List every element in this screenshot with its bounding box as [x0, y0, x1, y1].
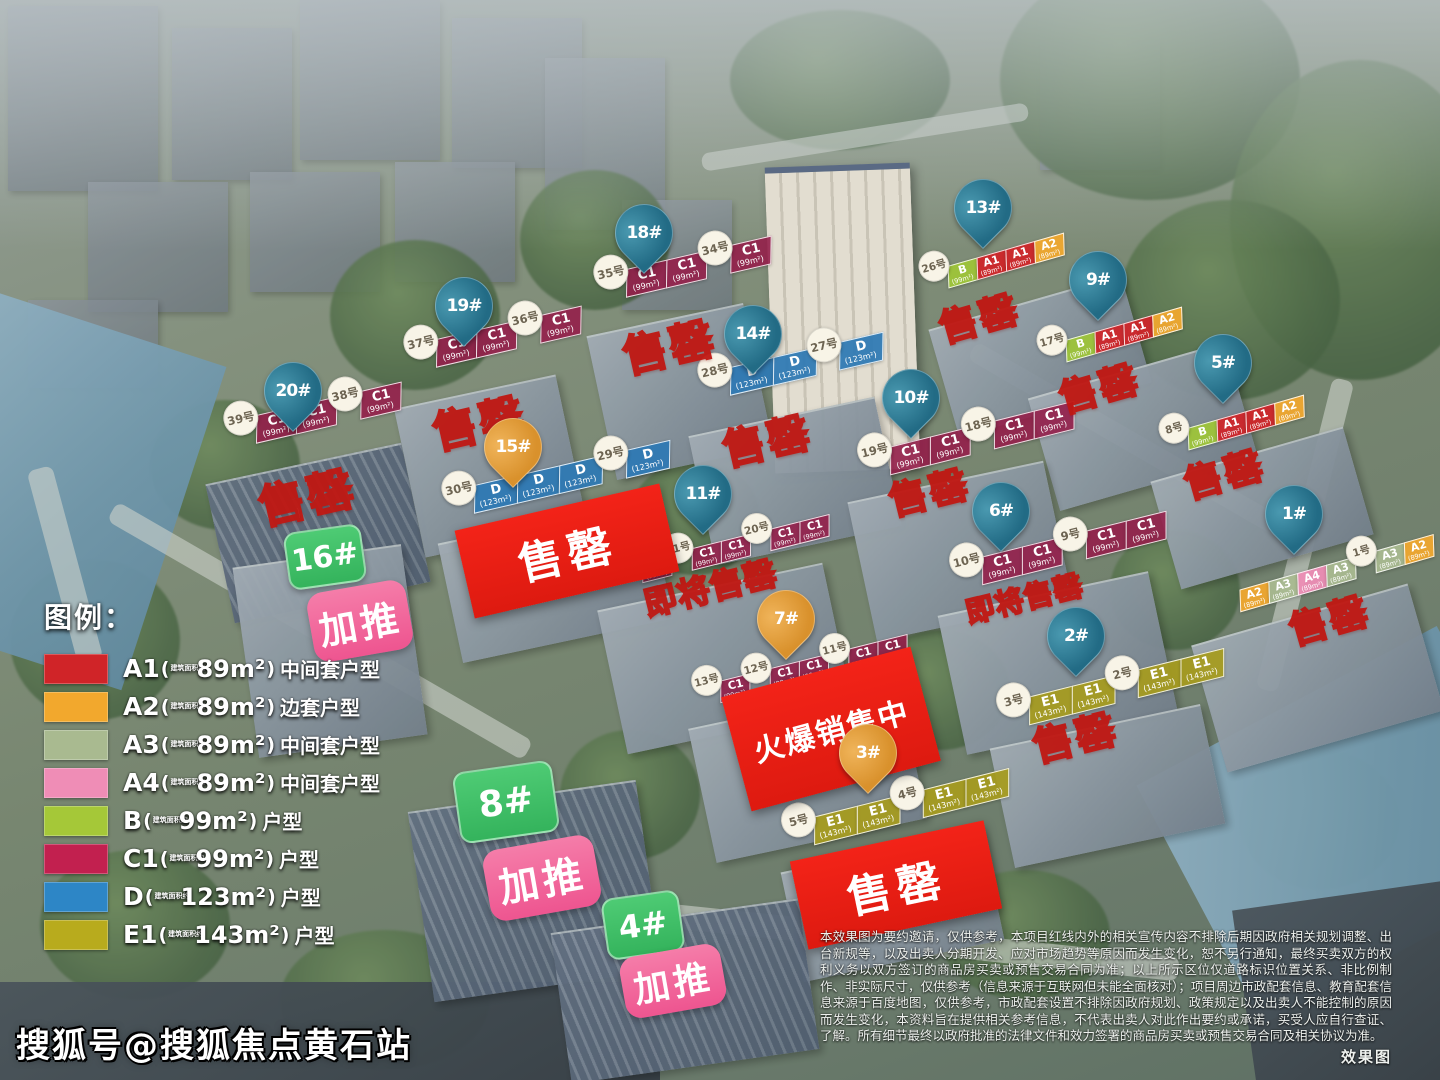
unit-area: (99m²): [262, 425, 291, 439]
unit-area: (143m²): [970, 787, 1004, 803]
unit-area: (99m²): [367, 401, 396, 415]
legend-title: 图例：: [44, 596, 424, 636]
unit-area: (99m²): [737, 255, 766, 269]
unit-area: (143m²): [1143, 678, 1177, 694]
pin-label: 9#: [1070, 252, 1126, 308]
legend-item-a1: A1(建筑面积约89m²)中间套户型: [44, 654, 424, 683]
pin-label: 13#: [955, 180, 1011, 236]
unit-type-tile: C1(99m²): [770, 521, 800, 552]
unit-area: (123m²): [631, 459, 665, 474]
unit-type-tile: A1(89m²): [1005, 241, 1036, 273]
site-plan-rendering: 39号C1(99m²)C1(99m²)38号C1(99m²) 37号C1(99m…: [0, 0, 1440, 1080]
unit-type-tile: A1(89m²): [1123, 315, 1154, 347]
unit-area: (99m²): [952, 273, 975, 286]
pin-label: 18#: [616, 205, 672, 261]
unit-type-tile: A2(89m²): [1274, 395, 1305, 427]
legend-qualifier: 建筑面积约: [170, 665, 196, 673]
pin-label: 19#: [436, 278, 492, 334]
unit-type-tile: A1(89m²): [1245, 403, 1276, 435]
unit-area: (99m²): [672, 270, 701, 284]
unit-type-tile: D(123m²): [839, 332, 883, 371]
unit-type-tile: A2(89m²): [1240, 581, 1271, 613]
legend-swatch-a4: [44, 768, 108, 798]
unit-area: (143m²): [861, 815, 895, 831]
legend-swatch-d: [44, 882, 108, 912]
unit-type-tile: E1(143m²): [1180, 649, 1223, 689]
unit-area: (99m²): [547, 325, 576, 339]
disclaimer-block: 本效果图为要约邀请，仅供参考，本项目红线内外的相关宣传内容不排除后期因政府相关规…: [820, 929, 1392, 1067]
unit-type-tile: B(99m²): [948, 258, 979, 290]
pin-label: 1#: [1266, 486, 1322, 542]
legend-swatch-c1: [44, 844, 108, 874]
pin-label: 11#: [675, 466, 731, 522]
legend-swatch-b: [44, 806, 108, 836]
unit-type-tile: E1(143m²): [923, 779, 966, 819]
unit-area: (99m²): [442, 349, 471, 363]
pin-label: 15#: [485, 419, 541, 475]
legend-item-c1: C1(建筑面积约99m²)户型: [44, 844, 424, 873]
unit-type-tile: C1(99m²): [730, 236, 771, 274]
unit-type-tile: C1(99m²): [540, 306, 581, 344]
unit-area: (99m²): [774, 537, 797, 549]
legend-item-a4: A4(建筑面积约89m²)中间套户型: [44, 768, 424, 797]
legend: 图例： A1(建筑面积约89m²)中间套户型 A2(建筑面积约89m²)边套户型…: [44, 596, 424, 958]
unit-area: (99m²): [482, 340, 511, 354]
watermark: 搜狐号@搜狐焦点黄石站: [16, 1018, 412, 1067]
unit-type-tile: C1(99m²): [360, 382, 401, 420]
unit-type-tile: C1(99m²): [994, 411, 1035, 450]
pin-label: 6#: [973, 483, 1029, 539]
haze-overlay: [0, 0, 1440, 250]
unit-area: (123m²): [844, 351, 878, 366]
unit-area: (99m²): [632, 279, 661, 293]
unit-type-tile: C1(99m²): [1086, 521, 1127, 560]
unit-type-tile: D(123m²): [626, 440, 670, 479]
unit-area: (99m²): [1000, 430, 1029, 445]
unit-area: (99m²): [803, 529, 826, 541]
pin-label: 7#: [758, 591, 814, 647]
unit-area: (143m²): [1185, 667, 1219, 683]
unit-area: (99m²): [1132, 530, 1161, 545]
legend-desc: 中间套户型: [280, 654, 380, 683]
legend-item-a3: A3(建筑面积约89m²)中间套户型: [44, 730, 424, 759]
unit-type-tile: E1(143m²): [965, 769, 1008, 809]
unit-area: (123m²): [778, 366, 812, 381]
unit-area: (123m²): [735, 376, 769, 391]
unit-type-tile: A1(89m²): [977, 249, 1008, 281]
unit-area: (123m²): [564, 475, 598, 490]
pin-label: 10#: [883, 370, 939, 426]
unit-type-tile: A2(89m²): [1404, 534, 1435, 566]
legend-area: 89m²: [196, 655, 265, 683]
pin-label: 5#: [1195, 335, 1251, 391]
tag-building-16: 16#: [282, 523, 367, 591]
unit-area: (143m²): [819, 825, 853, 841]
unit-area: (123m²): [479, 494, 513, 509]
legend-item-a2: A2(建筑面积约89m²)边套户型: [44, 692, 424, 721]
pin-label: 2#: [1048, 608, 1104, 664]
legend-swatch-a1: [44, 654, 108, 684]
unit-area: (99m²): [1092, 540, 1121, 555]
pin-label: 20#: [265, 363, 321, 419]
legend-swatch-a3: [44, 730, 108, 760]
disclaimer-text: 本效果图为要约邀请，仅供参考，本项目红线内外的相关宣传内容不排除后期因政府相关规…: [820, 929, 1392, 1045]
legend-item-e1: E1(建筑面积约143m²)户型: [44, 920, 424, 949]
unit-type-tile: C1(99m²): [800, 514, 830, 545]
legend-swatch-a2: [44, 692, 108, 722]
pin-label: 3#: [840, 725, 896, 781]
unit-type-tile: C1(99m²): [1126, 511, 1167, 550]
unit-type-tile: E1(143m²): [814, 806, 857, 846]
render-note: 效果图: [820, 1048, 1392, 1068]
unit-area: (99m²): [1040, 420, 1069, 435]
unit-area: (143m²): [928, 798, 962, 814]
unit-type-tile: A3(89m²): [1375, 543, 1406, 575]
unit-area: (99m²): [1070, 347, 1093, 360]
tag-building-8: 8#: [451, 759, 560, 844]
legend-swatch-e1: [44, 920, 108, 950]
unit-area: (123m²): [522, 484, 556, 499]
legend-code: A1: [123, 654, 160, 683]
pin-label: 14#: [725, 306, 781, 362]
unit-type-tile: A2(89m²): [1152, 307, 1183, 339]
unit-type-tile: E1(143m²): [1138, 659, 1181, 699]
legend-item-b: B(建筑面积约99m²)户型: [44, 806, 424, 835]
unit-type-tile: A2(89m²): [1034, 233, 1065, 265]
legend-item-d: D(建筑面积约123m²)户型: [44, 882, 424, 911]
